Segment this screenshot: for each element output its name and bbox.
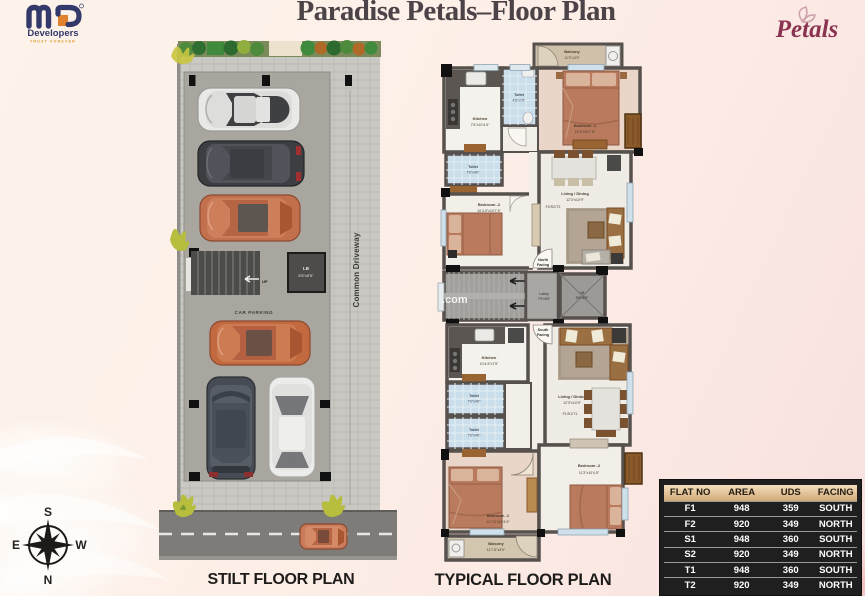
svg-text:F2/S2/T2: F2/S2/T2	[546, 205, 561, 209]
svg-text:Bedroom -1: Bedroom -1	[574, 123, 597, 128]
svg-text:5'5"x5'5": 5'5"x5'5"	[298, 273, 314, 278]
svg-text:7'6"x4'6": 7'6"x4'6"	[468, 434, 482, 438]
svg-text:7'6"x10'4.5": 7'6"x10'4.5"	[471, 123, 490, 127]
svg-text:CAR PARKING: CAR PARKING	[235, 310, 274, 315]
svg-text:Facing: Facing	[537, 333, 550, 337]
svg-text:Toilet: Toilet	[469, 428, 480, 432]
svg-text:11'3"x3'9": 11'3"x3'9"	[564, 56, 580, 60]
svg-text:Developers: Developers	[27, 28, 78, 39]
svg-text:S: S	[44, 505, 52, 519]
svg-text:Toilet: Toilet	[469, 394, 480, 398]
svg-text:Common Driveway: Common Driveway	[352, 232, 361, 307]
svg-text:Lift: Lift	[580, 291, 585, 295]
svg-text:5'5"x5'9": 5'5"x5'9"	[576, 296, 589, 300]
svg-text:LB: LB	[303, 266, 310, 271]
svg-text:12'3"x10'9": 12'3"x10'9"	[563, 401, 581, 405]
svg-text:Bedroom -1: Bedroom -1	[487, 513, 510, 518]
svg-text:Balcony: Balcony	[488, 541, 504, 546]
svg-text:Living / Dining: Living / Dining	[558, 394, 586, 399]
svg-text:Kitchen: Kitchen	[482, 355, 497, 360]
svg-text:E: E	[12, 538, 20, 552]
svg-text:12'3"x10'9": 12'3"x10'9"	[566, 198, 584, 202]
svg-text:Kitchen: Kitchen	[473, 116, 488, 121]
svg-text:TRUST FOREVER: TRUST FOREVER	[30, 40, 76, 44]
svg-text:10'4.5"x7'5": 10'4.5"x7'5"	[480, 362, 499, 366]
svg-text:Bedroom -2: Bedroom -2	[478, 202, 501, 207]
svg-text:11'7.5"x3'9": 11'7.5"x3'9"	[487, 548, 506, 552]
svg-text:11'3"x10'7.5": 11'3"x10'7.5"	[575, 130, 596, 134]
svg-text:Bedroom -2: Bedroom -2	[578, 463, 601, 468]
svg-text:F1/S1/T1: F1/S1/T1	[563, 412, 578, 416]
svg-text:North: North	[538, 258, 549, 262]
svg-text:Balcony: Balcony	[564, 49, 580, 54]
svg-text:UP: UP	[262, 279, 268, 284]
svg-text:7'9"x5'6": 7'9"x5'6"	[538, 297, 551, 301]
svg-text:Lobby: Lobby	[539, 292, 549, 296]
svg-text:.com: .com	[442, 294, 468, 306]
svg-text:11'7.5"x10'4.5": 11'7.5"x10'4.5"	[486, 520, 510, 524]
svg-text:10'4.5"x10'7.5": 10'4.5"x10'7.5"	[477, 209, 501, 213]
svg-text:7'6"x4'6": 7'6"x4'6"	[468, 400, 482, 404]
svg-text:Toilet: Toilet	[468, 165, 479, 169]
svg-text:7'6"x4'6": 7'6"x4'6"	[467, 171, 481, 175]
svg-text:N: N	[44, 573, 53, 587]
svg-text:South: South	[538, 328, 549, 332]
svg-text:4'6"x7'6": 4'6"x7'6"	[513, 99, 527, 103]
svg-text:11'3"x10'4.5": 11'3"x10'4.5"	[579, 471, 600, 475]
svg-text:Petals: Petals	[775, 16, 839, 43]
svg-text:Living / Dining: Living / Dining	[561, 191, 589, 196]
svg-text:W: W	[75, 538, 87, 552]
svg-text:Toilet: Toilet	[514, 93, 525, 97]
svg-text:Facing: Facing	[537, 263, 550, 267]
